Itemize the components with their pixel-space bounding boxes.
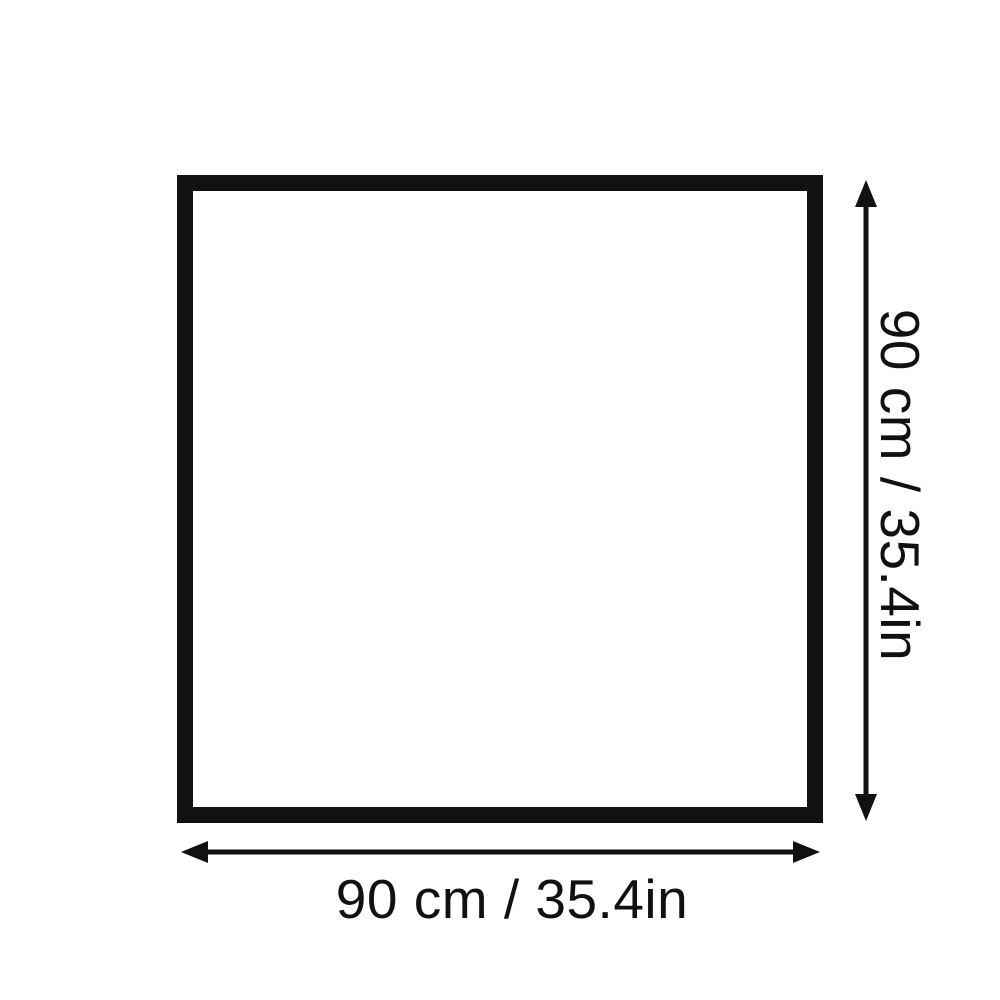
width-dimension-arrow	[181, 841, 820, 863]
dimension-arrows-layer	[0, 0, 1000, 1000]
width-dimension-label: 90 cm / 35.4in	[262, 868, 762, 930]
arrow-left-icon	[181, 841, 208, 863]
height-dimension-label: 90 cm / 35.4in	[869, 285, 931, 685]
arrow-up-icon	[855, 180, 877, 207]
dimension-diagram: 90 cm / 35.4in 90 cm / 35.4in	[0, 0, 1000, 1000]
arrow-right-icon	[793, 841, 820, 863]
arrow-down-icon	[855, 794, 877, 821]
